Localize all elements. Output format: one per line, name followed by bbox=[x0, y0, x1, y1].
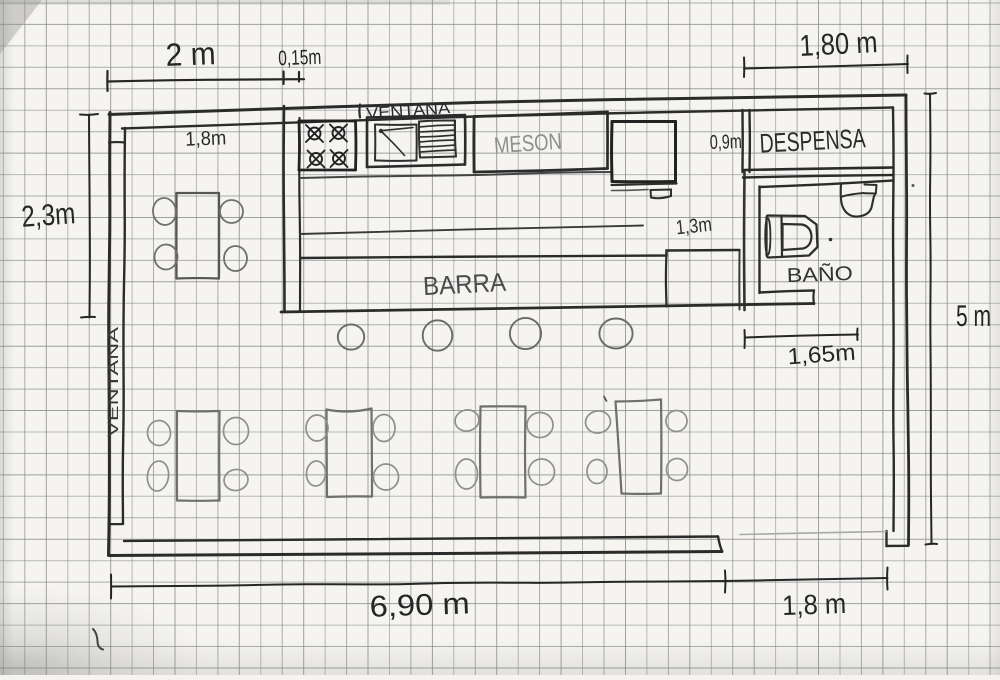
svg-text:MESON: MESON bbox=[493, 128, 563, 159]
svg-text:BAÑO: BAÑO bbox=[786, 262, 853, 287]
svg-text:0,9m: 0,9m bbox=[709, 131, 742, 154]
svg-text:2 m: 2 m bbox=[165, 35, 216, 73]
svg-text:6,90 m: 6,90 m bbox=[369, 587, 470, 623]
svg-text:5 m: 5 m bbox=[956, 300, 991, 333]
svg-text:1,80 m: 1,80 m bbox=[799, 26, 879, 63]
svg-text:1,3m: 1,3m bbox=[675, 214, 713, 240]
svg-text:1,8 m: 1,8 m bbox=[782, 588, 847, 621]
svg-text:0,15m: 0,15m bbox=[278, 46, 322, 70]
svg-text:VENTANA: VENTANA bbox=[105, 327, 122, 437]
svg-text:2,3m: 2,3m bbox=[20, 197, 76, 234]
svg-text:BARRA: BARRA bbox=[422, 267, 507, 301]
svg-text:1,65m: 1,65m bbox=[787, 339, 857, 370]
svg-text:1,8m: 1,8m bbox=[185, 127, 227, 150]
svg-text:DESPENSA: DESPENSA bbox=[759, 123, 866, 159]
